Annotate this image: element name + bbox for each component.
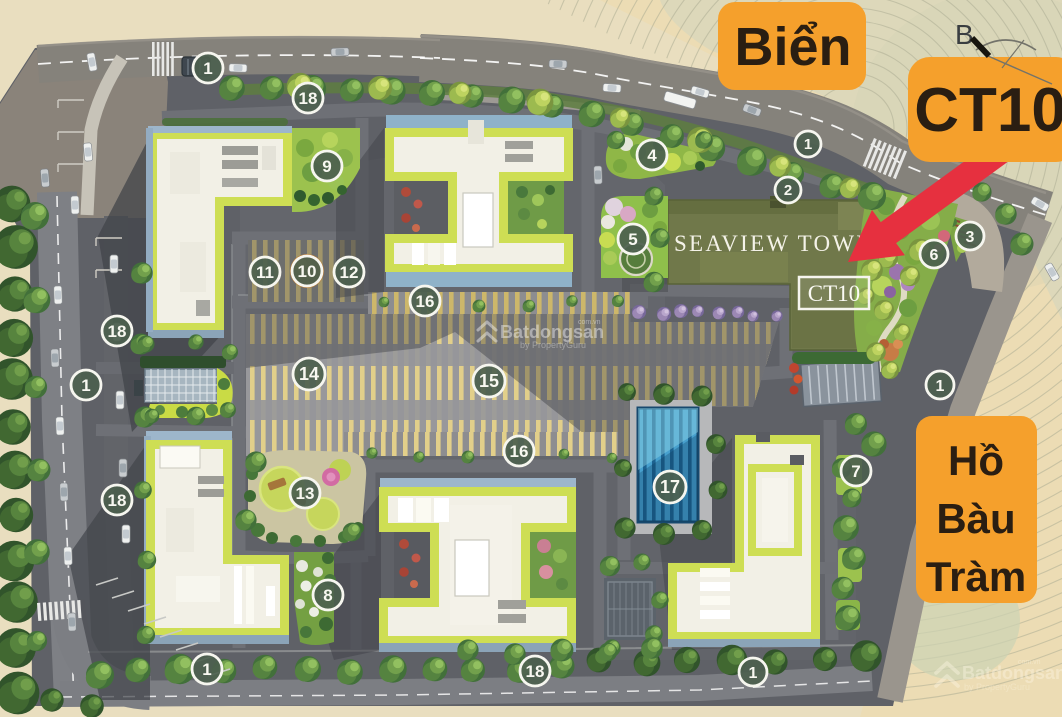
svg-text:18: 18 [299,89,318,108]
svg-text:16: 16 [510,442,529,461]
svg-text:1: 1 [202,660,211,679]
svg-text:6: 6 [930,247,939,264]
svg-text:Tràm: Tràm [926,553,1026,600]
svg-text:by PropertyGuru: by PropertyGuru [520,340,586,350]
svg-text:9: 9 [322,157,331,176]
svg-text:Biển: Biển [734,17,851,77]
svg-text:18: 18 [108,322,127,341]
svg-text:11: 11 [256,263,274,282]
svg-text:3: 3 [966,229,975,246]
svg-text:18: 18 [526,662,545,681]
svg-text:2: 2 [784,182,792,199]
svg-text:14: 14 [299,364,319,384]
svg-text:5: 5 [628,230,637,249]
svg-text:15: 15 [479,371,499,391]
svg-text:12: 12 [340,263,359,282]
svg-text:by PropertyGuru: by PropertyGuru [964,682,1030,692]
svg-text:1: 1 [936,378,945,395]
svg-text:18: 18 [108,491,127,510]
svg-text:Bàu: Bàu [936,495,1015,542]
svg-text:Hồ: Hồ [948,437,1004,484]
svg-text:com.vn: com.vn [578,319,601,326]
svg-text:1: 1 [203,59,212,78]
svg-text:4: 4 [647,146,657,165]
svg-text:Batdongsan: Batdongsan [962,663,1062,683]
svg-text:16: 16 [416,292,435,311]
svg-text:17: 17 [660,477,680,497]
svg-text:10: 10 [298,262,317,281]
svg-text:1: 1 [804,136,812,153]
svg-text:CT10: CT10 [808,281,860,306]
svg-text:com.vn: com.vn [1018,659,1041,666]
svg-text:13: 13 [296,484,315,503]
svg-text:B: B [955,19,974,50]
svg-text:8: 8 [323,586,332,605]
svg-text:1: 1 [81,376,90,395]
svg-text:CT10: CT10 [914,76,1062,145]
svg-text:1: 1 [749,665,758,682]
svg-text:7: 7 [851,462,860,481]
